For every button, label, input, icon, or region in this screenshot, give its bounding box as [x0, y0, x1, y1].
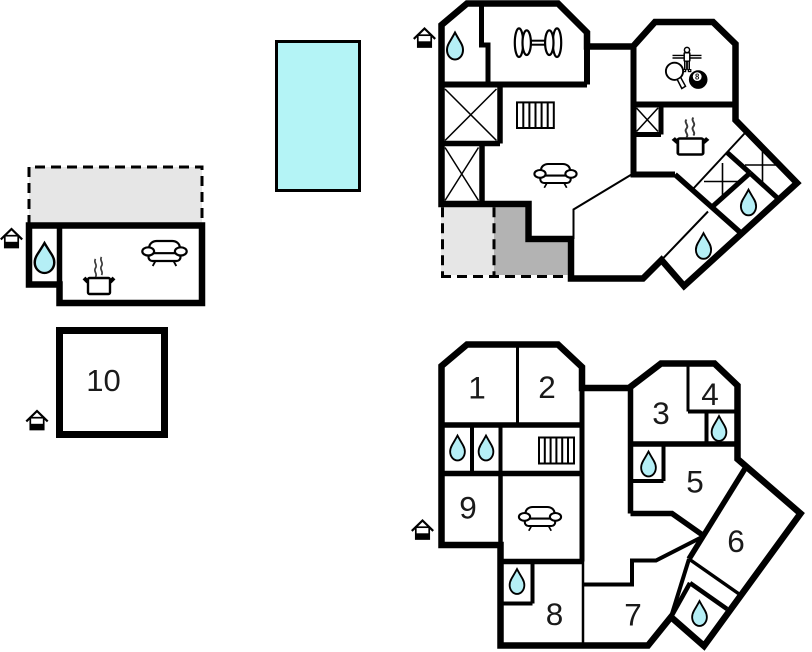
svg-text:8: 8 — [695, 73, 700, 82]
svg-text:7: 7 — [624, 597, 642, 633]
svg-text:1: 1 — [468, 370, 486, 406]
svg-text:2: 2 — [538, 369, 556, 405]
svg-text:10: 10 — [86, 363, 120, 398]
svg-text:6: 6 — [727, 523, 745, 559]
svg-text:4: 4 — [701, 376, 719, 412]
svg-text:5: 5 — [686, 464, 704, 500]
svg-text:8: 8 — [546, 596, 564, 632]
svg-text:9: 9 — [459, 490, 477, 526]
svg-text:3: 3 — [652, 395, 670, 431]
